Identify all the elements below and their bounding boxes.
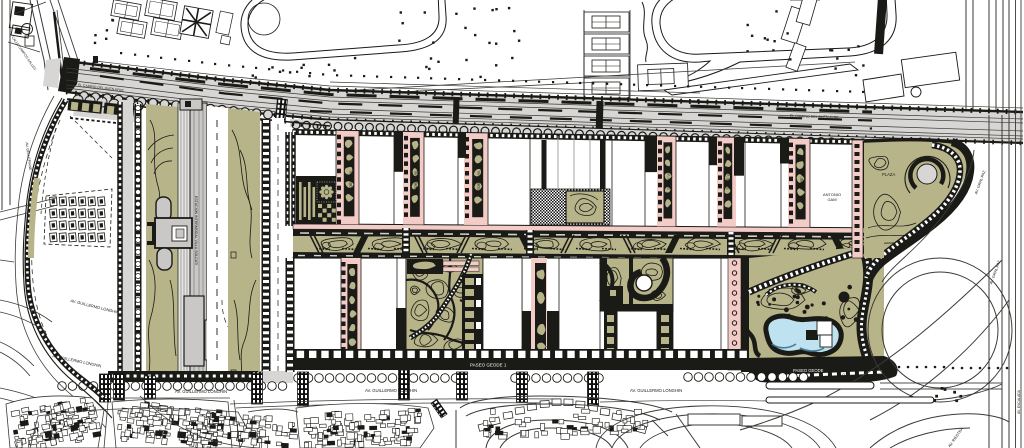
svg-text:GAM: GAM (827, 197, 836, 202)
svg-text:AV. ESCALADA: AV. ESCALADA (1017, 389, 1021, 414)
svg-text:TORRE VIV.: TORRE VIV. (667, 170, 671, 190)
svg-text:TORRE VIV.: TORRE VIV. (349, 170, 353, 190)
svg-text:PLAZA: PLAZA (882, 172, 895, 177)
svg-text:PASEO GEODE 1: PASEO GEODE 1 (470, 363, 507, 368)
svg-text:TORRE VIV.: TORRE VIV. (477, 170, 481, 190)
svg-text:TORRE VIV.: TORRE VIV. (800, 170, 804, 190)
svg-text:TORRE VIV.: TORRE VIV. (726, 170, 730, 190)
svg-text:PASEO GEODE: PASEO GEODE (793, 368, 824, 373)
svg-text:TORRE VIV.: TORRE VIV. (414, 170, 418, 190)
svg-text:AV. GUILLERMO LONGHIN: AV. GUILLERMO LONGHIN (630, 388, 682, 393)
svg-text:AV. GUILLERMO LONGHIN: AV. GUILLERMO LONGHIN (365, 388, 417, 393)
svg-text:ESTACION INTERMODAL VILLA SOLD: ESTACION INTERMODAL VILLA SOLDATI (194, 196, 198, 265)
svg-text:AV. GUILLERMO LONGHIN: AV. GUILLERMO LONGHIN (175, 389, 227, 394)
